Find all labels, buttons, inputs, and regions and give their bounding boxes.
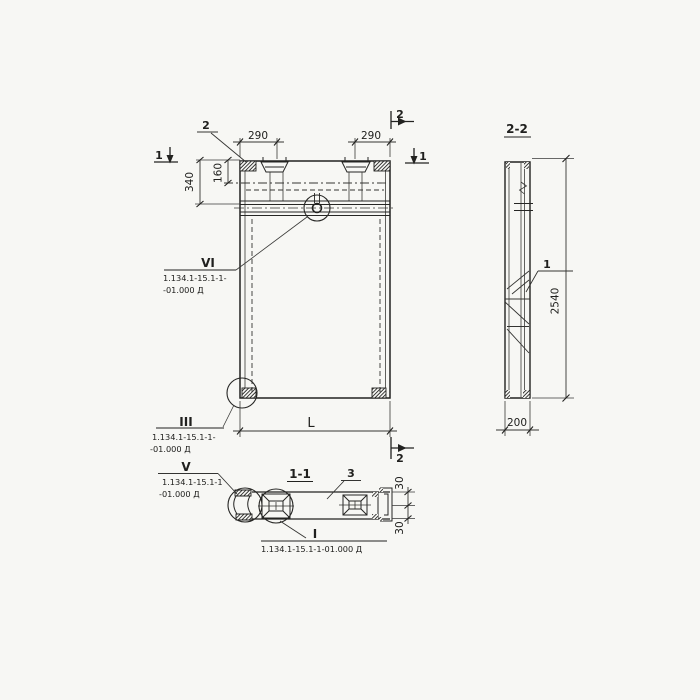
- section-2-2-view: 2-2 1 2540 200: [496, 122, 574, 436]
- extension-lines-bottom: [240, 401, 390, 437]
- technical-drawing: 290 290 340 160 L 1 1 2 2 2: [0, 0, 700, 700]
- section-mark-2-bottom-label: 2: [396, 452, 404, 465]
- panel-inner-edge-lines: [245, 163, 386, 397]
- section-1-1-extension-lines: [392, 492, 415, 519]
- callout-3: 3: [327, 467, 361, 499]
- section-mark-1-right-label: 1: [419, 150, 427, 163]
- dim-30-top: 30: [394, 476, 406, 489]
- section-1-1-title-text: 1-1: [289, 467, 311, 481]
- detail-circle-vi: [304, 193, 330, 221]
- corner-hatch-bottom-left: [242, 388, 256, 398]
- dim-160: 160: [213, 163, 225, 183]
- section-2-2-hatch-bottom-right: [523, 390, 530, 398]
- section-2-2-title-text: 2-2: [506, 122, 528, 136]
- detail-i-ref: 1.134.1-15.1-1-01.000 Д: [261, 544, 362, 554]
- section-1-1-title: 1-1: [287, 467, 313, 482]
- detail-label-vi: VI 1.134.1-15.1-1- -01.000 Д: [163, 256, 236, 295]
- hidden-edge-dashed-verticals: [252, 219, 380, 392]
- detail-label-v: V 1.134.1-15.1-1 -01.000 Д: [158, 460, 237, 499]
- detail-vi-numeral: VI: [201, 256, 215, 270]
- callout-3-label: 3: [347, 467, 355, 480]
- leader-detail-iii: [223, 405, 234, 427]
- lifting-slot-right: [342, 157, 370, 172]
- dim-length-L: L: [307, 416, 315, 431]
- dim-340: 340: [184, 172, 196, 192]
- detail-i-numeral: I: [313, 527, 317, 541]
- detail-label-iii: III 1.134.1-15.1-1- -01.000 Д: [150, 415, 224, 454]
- section-2-2-break-zigzag: [520, 182, 527, 194]
- dim-200: 200: [507, 417, 527, 429]
- section-2-2-inner-lines: [509, 162, 525, 398]
- bar-right-end: [372, 488, 392, 521]
- callout-2-label: 2: [202, 119, 210, 132]
- panel-outline: [240, 161, 390, 398]
- detail-iii-ref1: 1.134.1-15.1-1-: [152, 432, 216, 442]
- dim-290-right: 290: [361, 130, 381, 142]
- corner-hatch-top-right: [374, 161, 390, 171]
- slot-rib-lines: [270, 172, 362, 201]
- keyway-left: [258, 494, 294, 518]
- detail-vi-ref1: 1.134.1-15.1-1-: [163, 273, 227, 283]
- section-mark-1-right: 1: [405, 148, 429, 165]
- corner-hatch-bottom-right: [372, 388, 386, 398]
- section-1-1-view: 1-1 3: [158, 460, 415, 554]
- dim-lines-top: [200, 142, 396, 204]
- detail-v-numeral: V: [181, 460, 191, 474]
- section-mark-1-left-label: 1: [155, 149, 163, 162]
- section-2-2-hatch-bottom-left: [506, 390, 511, 398]
- section-mark-2-top-label: 2: [396, 108, 404, 121]
- corner-hatch-top-left: [240, 161, 256, 171]
- lifting-slot-left: [261, 157, 288, 172]
- leader-detail-vi: [236, 217, 307, 270]
- dim-290-left: 290: [248, 130, 268, 142]
- section-2-2-hatch-top-left: [506, 162, 510, 169]
- front-view: 290 290 340 160 L 1 1 2 2 2: [150, 108, 429, 465]
- dim-30-bottom: 30: [394, 521, 406, 534]
- callout-1-label: 1: [543, 258, 551, 271]
- keyway-middle: [339, 495, 371, 515]
- drawing-sheet: 290 290 340 160 L 1 1 2 2 2: [0, 0, 700, 700]
- section-mark-2-bottom: 2: [391, 437, 414, 465]
- section-mark-2-top: 2: [391, 108, 414, 129]
- detail-label-i: I 1.134.1-15.1-1-01.000 Д: [261, 521, 387, 554]
- detail-v-ref1: 1.134.1-15.1-1: [162, 477, 223, 487]
- section-2-2-hatch-top-right: [524, 162, 529, 169]
- detail-iii-ref2: -01.000 Д: [150, 444, 191, 454]
- dim-2540: 2540: [550, 288, 562, 315]
- section-2-2-title: 2-2: [504, 122, 531, 137]
- detail-vi-ref2: -01.000 Д: [163, 285, 204, 295]
- detail-iii-numeral: III: [179, 415, 192, 429]
- callout-2: 2: [197, 119, 246, 162]
- section-2-2-extension-lines: [505, 159, 574, 437]
- section-mark-1-left: 1: [154, 147, 178, 164]
- detail-v-ref2: -01.000 Д: [159, 489, 200, 499]
- bar-left-end-cap: [234, 490, 252, 520]
